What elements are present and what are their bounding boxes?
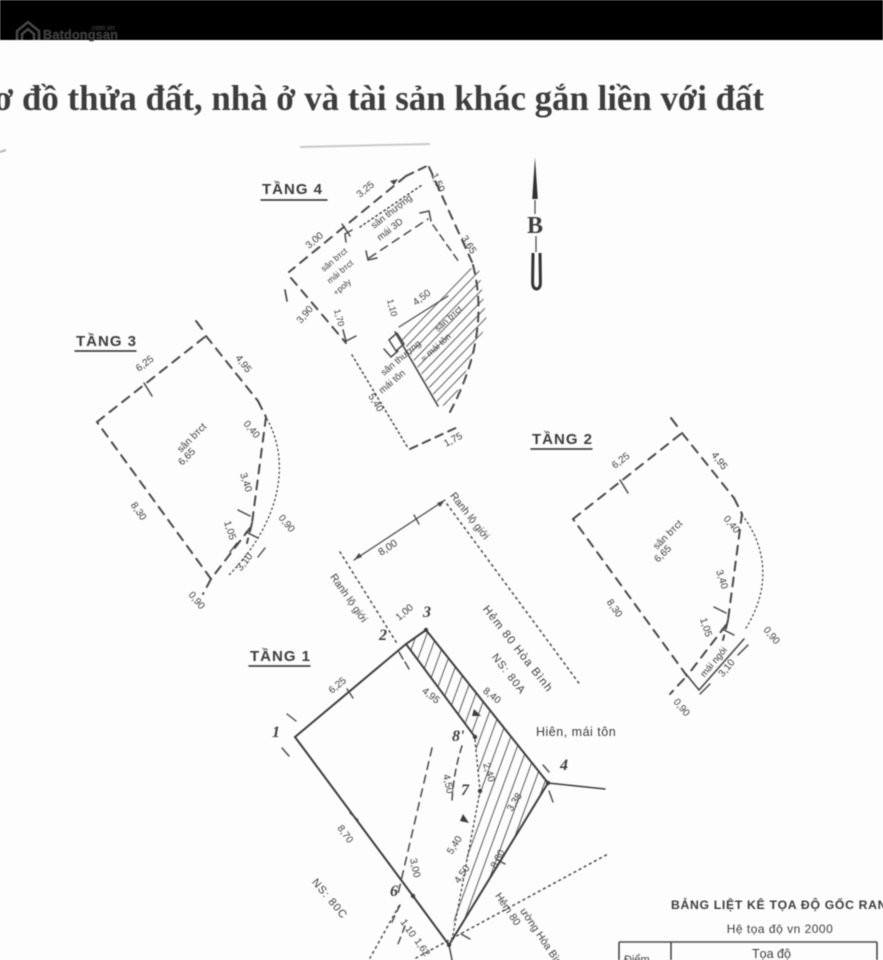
svg-text:Hệ tọa độ vn 2000: Hệ tọa độ vn 2000 <box>727 922 834 936</box>
svg-text:2: 2 <box>378 627 387 644</box>
svg-text:Hiên, mái tôn: Hiên, mái tôn <box>536 725 616 739</box>
svg-text:8': 8' <box>452 728 465 745</box>
svg-text:Điểm: Điểm <box>624 954 650 960</box>
svg-text:6: 6 <box>390 883 398 900</box>
svg-text:TẦNG 3: TẦNG 3 <box>76 333 137 350</box>
svg-text:BẢNG LIỆT KÊ TỌA ĐỘ GỐC RANH: BẢNG LIỆT KÊ TỌA ĐỘ GỐC RANH <box>671 897 883 912</box>
svg-text:7: 7 <box>461 782 470 799</box>
svg-text:Tọa độ: Tọa độ <box>752 947 791 960</box>
svg-text:ơ đồ thửa đất, nhà ở và tài sả: ơ đồ thửa đất, nhà ở và tài sản khác gắn… <box>0 78 764 118</box>
svg-text:4: 4 <box>559 757 568 774</box>
svg-text:3: 3 <box>422 604 431 621</box>
svg-text:1: 1 <box>272 724 280 741</box>
svg-text:TẦNG 1: TẦNG 1 <box>250 648 311 665</box>
svg-text:.com.vn: .com.vn <box>90 25 115 32</box>
svg-text:B: B <box>527 213 543 239</box>
svg-text:TẦNG 2: TẦNG 2 <box>532 431 593 448</box>
svg-text:TẦNG 4: TẦNG 4 <box>262 181 323 198</box>
